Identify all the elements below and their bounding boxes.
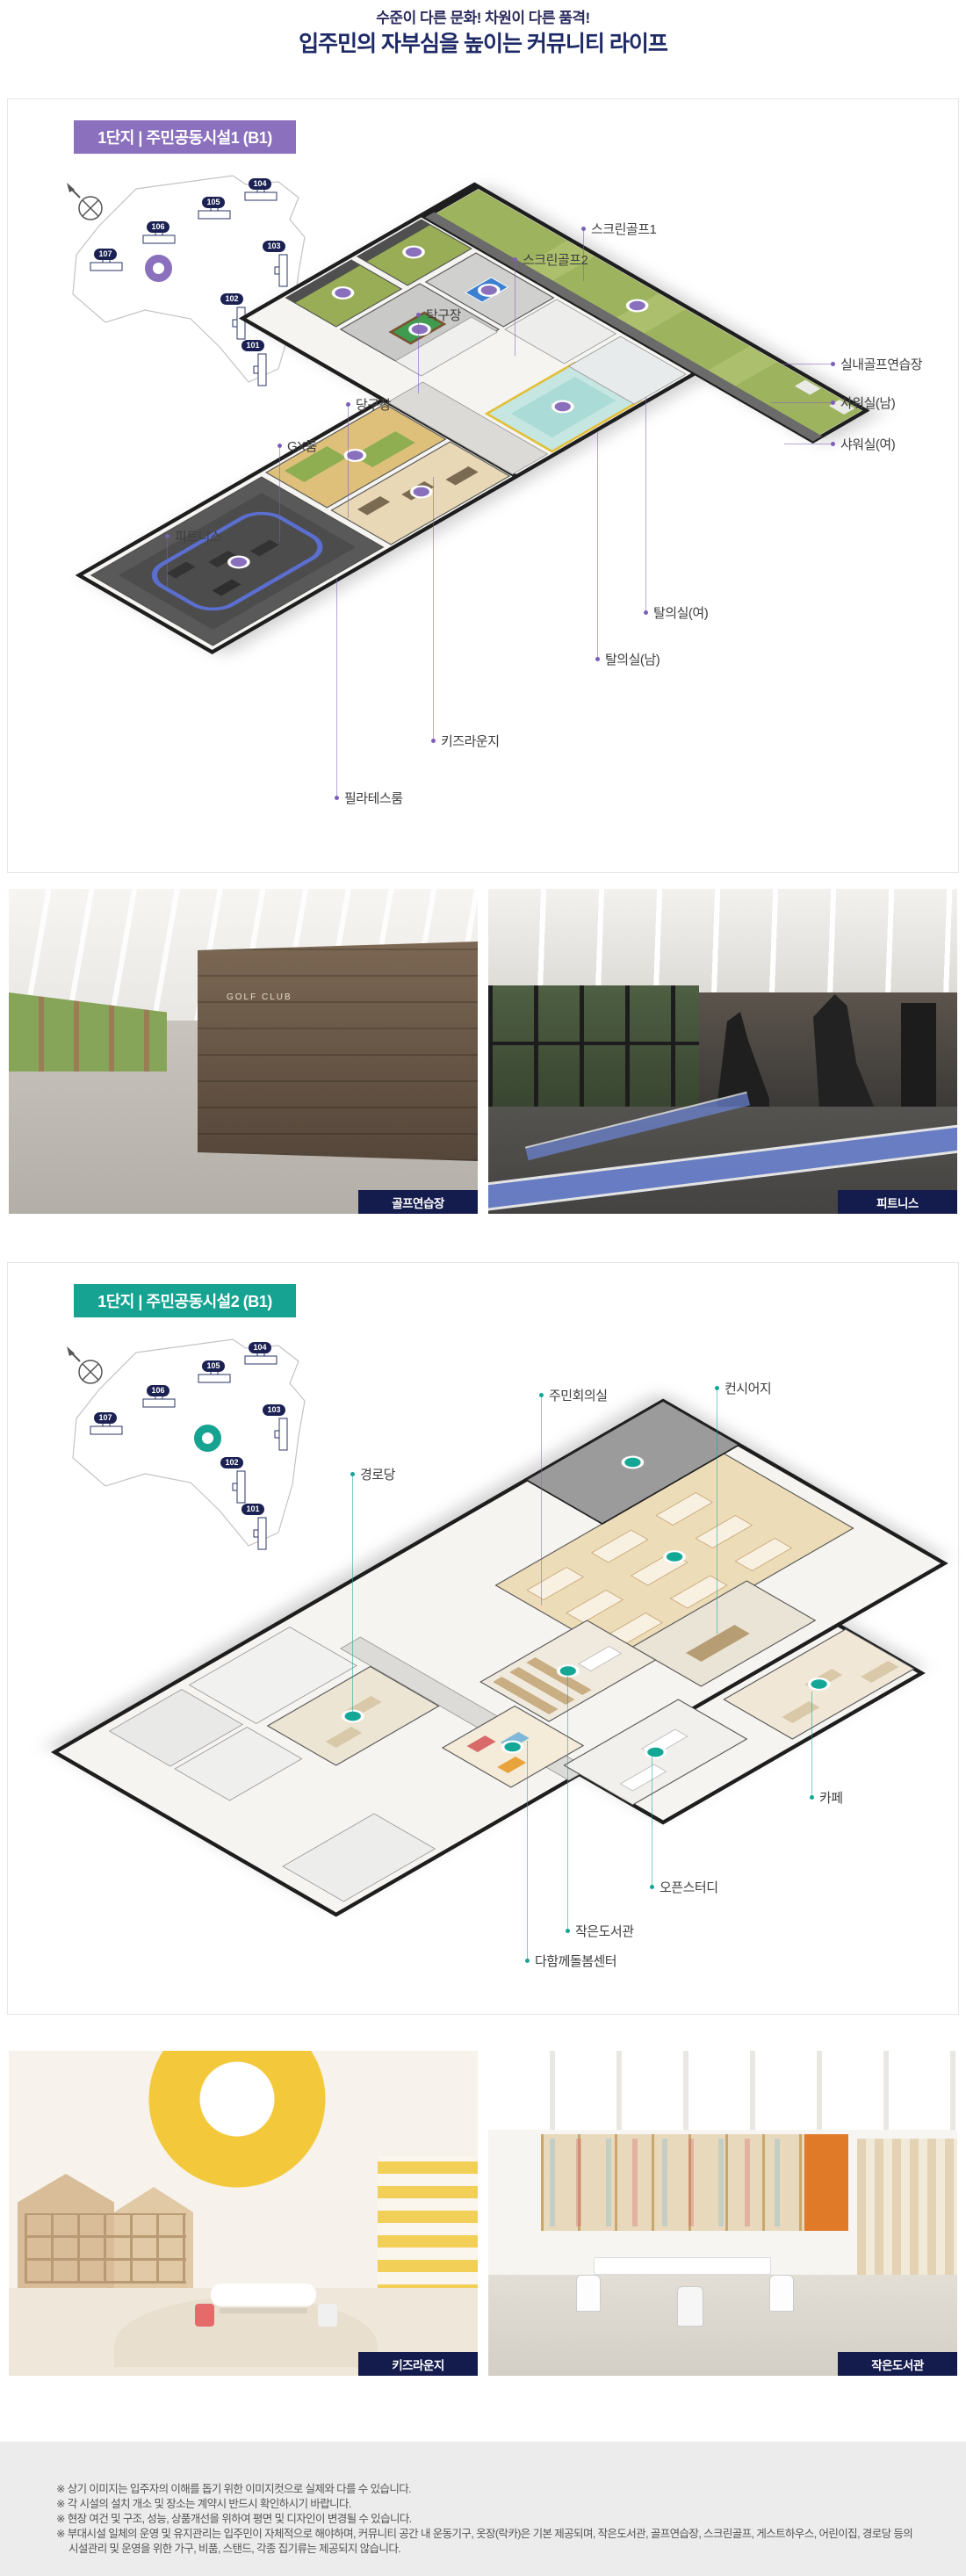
striped-wall bbox=[378, 2156, 478, 2297]
page-title: 입주민의 자부심을 높이는 커뮤니티 라이프 bbox=[0, 26, 966, 58]
section2-badge: 1단지 | 주민공동시설2 (B1) bbox=[74, 1284, 296, 1317]
label-open-study: 오픈스터디 bbox=[650, 1878, 718, 1895]
page-tagline: 수준이 다른 문화! 차원이 다른 품격! bbox=[0, 5, 966, 27]
label-screen-golf-1: 스크린골프1 bbox=[581, 220, 656, 237]
label-pilates: 필라테스룸 bbox=[335, 789, 403, 806]
ceiling-lights bbox=[488, 889, 957, 994]
label-screen-golf-2: 스크린골프2 bbox=[513, 250, 588, 268]
community-life-brochure: 수준이 다른 문화! 차원이 다른 품격! 입주민의 자부심을 높이는 커뮤니티… bbox=[0, 0, 966, 2576]
label-gx-room: GX룸 bbox=[278, 437, 317, 454]
label-concierge: 컨시어지 bbox=[715, 1379, 771, 1396]
callout-line bbox=[597, 432, 598, 659]
ceiling bbox=[488, 2051, 957, 2130]
label-shower-f: 샤워실(여) bbox=[831, 435, 895, 452]
gym-machine bbox=[901, 1003, 936, 1108]
label-daycare-center: 다함께돌봄센터 bbox=[525, 1952, 616, 1969]
callout-line bbox=[541, 1395, 542, 1605]
photo-caption: 작은도서관 bbox=[838, 2352, 957, 2376]
callout-line bbox=[645, 397, 646, 612]
library-chair bbox=[677, 2286, 703, 2327]
callout-line bbox=[433, 477, 434, 740]
callout-line bbox=[811, 1692, 812, 1797]
kids-chair bbox=[195, 2304, 214, 2327]
label-meeting-room: 주민회의실 bbox=[539, 1386, 608, 1403]
label-locker-m: 탈의실(남) bbox=[595, 650, 660, 667]
library-chair bbox=[769, 2275, 794, 2312]
floorplan2-isometric bbox=[0, 1344, 966, 2011]
callout-line bbox=[418, 314, 419, 393]
callout-line bbox=[279, 445, 280, 542]
label-shower-m: 샤워실(남) bbox=[831, 393, 895, 411]
label-kids-lounge: 키즈라운지 bbox=[431, 732, 500, 749]
window-frames bbox=[488, 985, 699, 1117]
golf-club-sign: GOLF CLUB bbox=[227, 992, 292, 1002]
golf-practice-photo: GOLF CLUB 골프연습장 bbox=[9, 889, 478, 1214]
callout-line bbox=[336, 578, 337, 797]
orange-panel bbox=[804, 2134, 848, 2231]
callout-line bbox=[515, 259, 515, 356]
shelf-cubbies bbox=[25, 2213, 186, 2284]
callout-line bbox=[782, 364, 833, 364]
kids-lounge-photo: 키즈라운지 bbox=[9, 2051, 478, 2376]
label-indoor-golf-range: 실내골프연습장 bbox=[831, 355, 922, 372]
photo-caption: 골프연습장 bbox=[358, 1190, 478, 1214]
fitness-photo: 피트니스 bbox=[488, 889, 957, 1214]
callout-line bbox=[717, 1388, 717, 1634]
callout-line bbox=[527, 1741, 528, 1960]
label-table-tennis: 탁구장 bbox=[416, 306, 461, 323]
wood-planks bbox=[198, 942, 478, 1161]
library-table bbox=[594, 2257, 771, 2275]
photo-caption: 피트니스 bbox=[838, 1190, 957, 1214]
disclaimer-note: 시설관리 및 운영을 위한 가구, 비품, 스탠드, 각종 집기류는 제공되지 … bbox=[56, 2539, 400, 2556]
small-library-photo: 작은도서관 bbox=[488, 2051, 957, 2376]
photo-caption: 키즈라운지 bbox=[358, 2352, 478, 2376]
callout-line bbox=[352, 1474, 353, 1713]
callout-line bbox=[652, 1755, 652, 1887]
label-small-library: 작은도서관 bbox=[566, 1922, 634, 1939]
library-chair bbox=[576, 2275, 601, 2312]
kids-chair bbox=[318, 2304, 337, 2327]
book-strip bbox=[550, 2139, 796, 2226]
label-senior-center: 경로당 bbox=[350, 1465, 395, 1483]
label-billiards: 당구장 bbox=[346, 395, 391, 413]
callout-line bbox=[771, 402, 833, 403]
callout-line bbox=[567, 1676, 568, 1930]
label-locker-f: 탈의실(여) bbox=[644, 603, 708, 621]
callout-line bbox=[784, 444, 833, 444]
disclaimer-footer: ※ 상기 이미지는 입주자의 이해를 돕기 위한 이미지컷으로 실제와 다를 수… bbox=[0, 2442, 966, 2576]
label-cafe: 카페 bbox=[810, 1788, 843, 1806]
label-fitness: 피트니스 bbox=[165, 527, 221, 545]
callout-line bbox=[348, 404, 349, 518]
kids-table bbox=[211, 2284, 316, 2306]
